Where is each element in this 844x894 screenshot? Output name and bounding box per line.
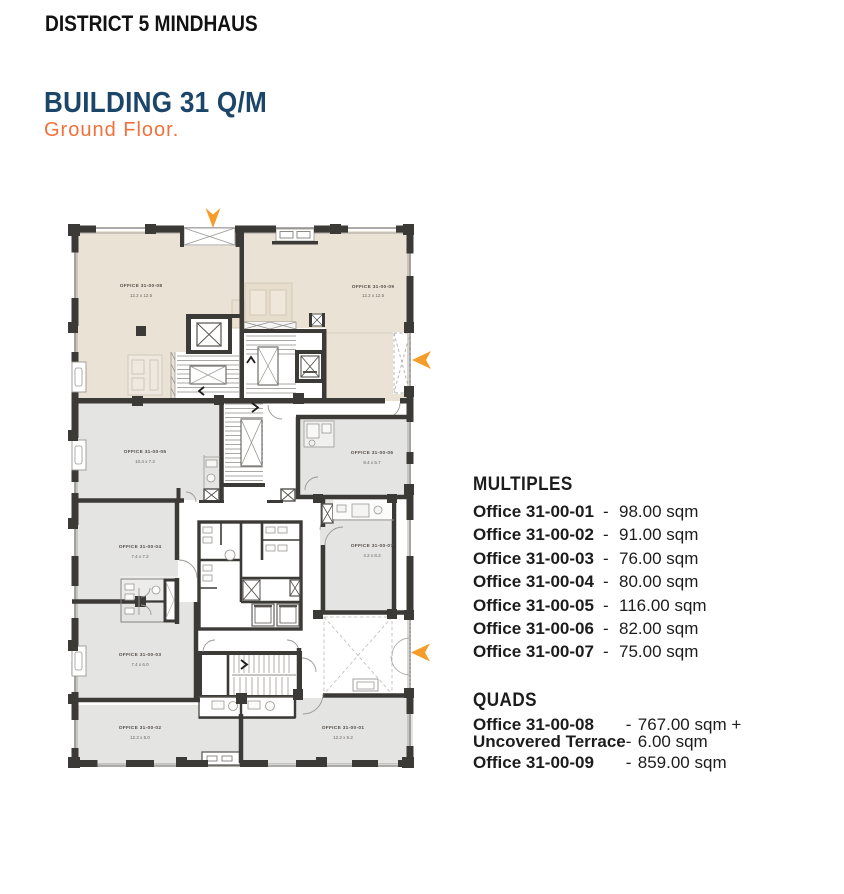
svg-text:OFFICE 31-00-03: OFFICE 31-00-03 [119, 652, 162, 658]
svg-text:OFFICE 31-00-01: OFFICE 31-00-01 [322, 725, 365, 731]
svg-text:4.2 x 8.3: 4.2 x 8.3 [363, 553, 381, 558]
svg-text:OFFICE 31-00-07: OFFICE 31-00-07 [351, 543, 394, 549]
svg-text:7.4 x 7.2: 7.4 x 7.2 [131, 554, 149, 559]
svg-text:OFFICE 31-00-04: OFFICE 31-00-04 [119, 544, 162, 550]
svg-text:8.4 x 5.7: 8.4 x 5.7 [363, 460, 381, 465]
svg-text:OFFICE 31-00-09: OFFICE 31-00-09 [352, 284, 395, 290]
svg-text:OFFICE 31-00-06: OFFICE 31-00-06 [351, 450, 394, 456]
svg-text:7.4 x 6.0: 7.4 x 6.0 [131, 662, 149, 667]
svg-text:12.2 x 5.2: 12.2 x 5.2 [333, 735, 353, 740]
svg-text:12.2 x 5.0: 12.2 x 5.0 [130, 735, 150, 740]
svg-text:12.2 x 12.5: 12.2 x 12.5 [130, 293, 153, 298]
svg-text:OFFICE 31-00-02: OFFICE 31-00-02 [119, 725, 162, 731]
svg-text:OFFICE 31-00-05: OFFICE 31-00-05 [124, 449, 167, 455]
svg-text:12.2 x 12.5: 12.2 x 12.5 [362, 293, 385, 298]
svg-text:10.4 x 7.2: 10.4 x 7.2 [135, 459, 155, 464]
svg-text:OFFICE 31-00-08: OFFICE 31-00-08 [120, 283, 163, 289]
